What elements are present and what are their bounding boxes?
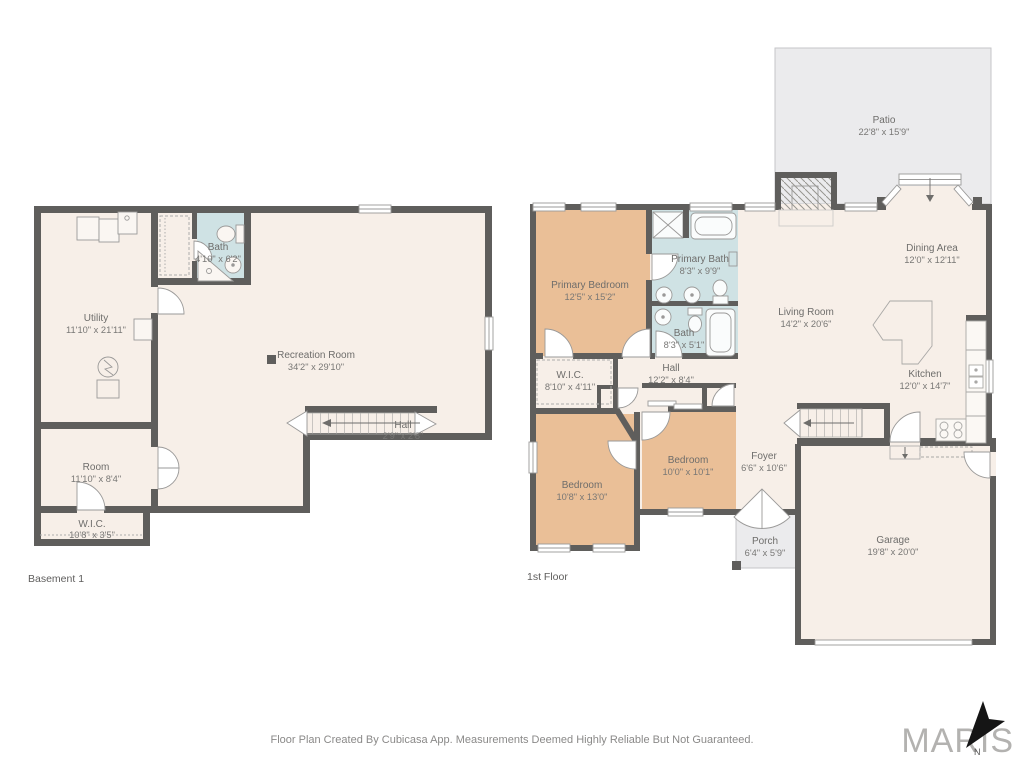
laundry-sink-icon xyxy=(118,212,137,234)
basement-plan: Utility 11'10" x 21'11" Bath 4'10" x 6'2… xyxy=(28,205,493,585)
room-dims-hall-1: 12'2" x 8'4" xyxy=(648,375,694,385)
wall-segment xyxy=(884,403,890,446)
wall-segment xyxy=(104,506,310,513)
room-dims-room: 11'10" x 8'4" xyxy=(71,474,121,484)
washer-icon xyxy=(77,217,99,240)
wall-segment xyxy=(797,639,815,645)
room-label-bath-b: Bath xyxy=(208,242,229,253)
dryer-icon xyxy=(99,219,119,242)
room-label-hall-1: Hall xyxy=(662,363,679,374)
wall-segment xyxy=(990,476,996,645)
room-label-bath-1: Bath xyxy=(674,328,695,339)
support-post xyxy=(267,355,276,364)
wall-segment xyxy=(597,385,618,389)
room-label-garage: Garage xyxy=(876,535,910,546)
wall-segment xyxy=(34,206,492,213)
room-label-primary-bedroom: Primary Bedroom xyxy=(551,280,629,291)
room-dims-foyer: 6'6" x 10'6" xyxy=(741,463,787,473)
garage-door xyxy=(815,640,972,645)
wall-segment xyxy=(303,433,310,513)
hearth xyxy=(779,210,833,226)
room-label-wic-b: W.I.C. xyxy=(78,519,105,530)
fireplace-hatch xyxy=(781,178,831,210)
room-dims-wic-1: 8'10" x 4'11" xyxy=(545,382,595,392)
sink-drain xyxy=(975,369,977,371)
wall-segment xyxy=(34,422,158,429)
room-dims-utility: 11'10" x 21'11" xyxy=(66,325,126,335)
room-dims-recreation: 34'2" x 29'10" xyxy=(288,362,344,372)
wall-segment xyxy=(613,359,618,409)
sink-drain xyxy=(232,264,235,267)
sink-drain xyxy=(691,294,694,297)
compass-n-label: N xyxy=(974,747,981,757)
room-dims-kitchen: 12'0" x 14'7" xyxy=(900,381,951,391)
floorplan-page: Utility 11'10" x 21'11" Bath 4'10" x 6'2… xyxy=(0,0,1024,768)
room-label-living: Living Room xyxy=(778,307,834,318)
room-label-dining: Dining Area xyxy=(906,243,958,254)
chimney-box xyxy=(134,319,152,340)
room-label-hall-b: Hall xyxy=(394,420,411,431)
wall-segment xyxy=(775,172,781,210)
room-label-primary-bath: Primary Bath xyxy=(671,254,729,265)
floor-label-first: 1st Floor xyxy=(527,571,568,583)
wall-segment xyxy=(683,210,689,238)
room-dims-living: 14'2" x 20'6" xyxy=(781,319,832,329)
wall-segment xyxy=(192,213,197,239)
wall-segment xyxy=(702,385,707,408)
room-dims-porch: 6'4" x 5'9" xyxy=(745,548,786,558)
wall-segment xyxy=(151,206,158,287)
wall-segment xyxy=(986,204,992,446)
wall-segment xyxy=(972,639,996,645)
wall-segment xyxy=(966,315,992,321)
wall-segment xyxy=(973,197,982,206)
sink-drain xyxy=(662,316,665,319)
wall-segment xyxy=(650,353,655,359)
wall-segment xyxy=(831,172,837,210)
wall-segment xyxy=(530,204,536,551)
wall-segment xyxy=(646,210,652,254)
toilet-tank xyxy=(236,225,244,243)
room-label-patio: Patio xyxy=(873,115,896,126)
wall-segment xyxy=(797,403,890,409)
toilet-bowl xyxy=(217,226,235,242)
first-floor-plan: Patio 22'8" x 15'9" Primary Bedroom 12'5… xyxy=(527,48,996,645)
footer-disclaimer: Floor Plan Created By Cubicasa App. Meas… xyxy=(0,734,1024,746)
fireplace xyxy=(775,172,837,226)
room-dims-primary-bath: 8'3" x 9'9" xyxy=(680,266,721,276)
floorplan-drawing: Utility 11'10" x 21'11" Bath 4'10" x 6'2… xyxy=(0,0,1024,768)
room-label-room: Room xyxy=(83,462,110,473)
wall-segment xyxy=(797,438,884,446)
room-dims-primary-bedroom: 12'5" x 15'2" xyxy=(565,292,616,302)
room-label-recreation: Recreation Room xyxy=(277,350,355,361)
room-dims-dining: 12'0" x 12'11" xyxy=(904,255,959,265)
room-label-foyer: Foyer xyxy=(751,451,777,462)
room-dims-bedroom-small: 10'0" x 10'1" xyxy=(663,467,714,477)
sink-drain xyxy=(975,381,977,383)
wall-segment xyxy=(34,539,150,546)
wall-segment xyxy=(530,353,543,359)
wall-segment xyxy=(151,489,158,513)
room-dims-patio: 22'8" x 15'9" xyxy=(859,127,910,137)
room-label-bedroom-small: Bedroom xyxy=(668,455,709,466)
wall-segment xyxy=(573,353,623,359)
wall-segment xyxy=(795,444,801,645)
stove-icon xyxy=(936,419,966,441)
sliding-door xyxy=(674,404,702,409)
toilet-tank xyxy=(688,308,702,315)
wall-segment xyxy=(775,172,837,178)
room-label-bedroom-large: Bedroom xyxy=(562,480,603,491)
wall-segment xyxy=(530,204,775,210)
room-dims-bath-b: 4'10" x 6'2" xyxy=(195,254,241,264)
north-arrow-icon: N xyxy=(952,694,1012,758)
toilet-bowl xyxy=(713,280,727,296)
room-label-kitchen: Kitchen xyxy=(908,369,941,380)
wall-segment xyxy=(990,446,996,452)
toilet-tank xyxy=(713,296,728,304)
room-dims-bath-1: 8'3" x 5'1" xyxy=(664,340,705,350)
wall-segment xyxy=(34,506,77,513)
wall-segment xyxy=(34,206,41,546)
room-label-wic-1: W.I.C. xyxy=(556,370,583,381)
room-dims-hall-b: 2'9" x 2'8" xyxy=(383,431,424,441)
basement-floor xyxy=(34,207,491,546)
room-dims-bedroom-large: 10'8" x 13'0" xyxy=(557,492,608,502)
room-label-utility: Utility xyxy=(84,313,108,324)
floor-label-basement: Basement 1 xyxy=(28,573,84,585)
wall-segment xyxy=(244,206,251,285)
room-dims-garage: 19'8" x 20'0" xyxy=(868,547,919,557)
wall-segment xyxy=(305,406,437,413)
wall-segment xyxy=(530,408,618,414)
room-label-porch: Porch xyxy=(752,536,778,547)
sink-drain xyxy=(663,294,666,297)
wall-segment xyxy=(151,429,158,447)
room-dims-wic-b: 10'8" x 3'5" xyxy=(69,530,115,540)
sliding-door xyxy=(648,401,676,406)
porch-post xyxy=(732,561,741,570)
